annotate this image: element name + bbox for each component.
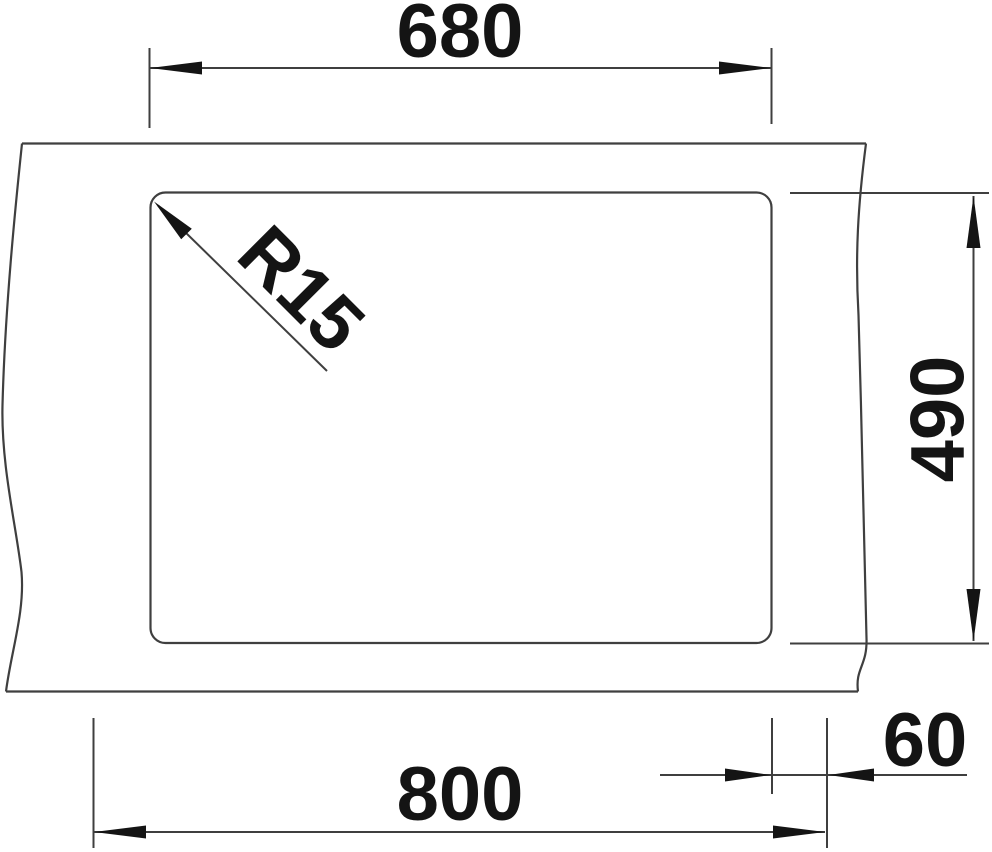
arrowhead-right (719, 62, 771, 75)
arrowhead-bottom (967, 589, 981, 641)
arrowhead-right (773, 826, 825, 839)
arrowhead-left (725, 769, 771, 782)
arrowhead-left (94, 826, 146, 839)
dimension-overall-width: 800 (94, 718, 826, 848)
overall-width-label: 800 (397, 752, 524, 837)
dimension-bowl-width: 680 (150, 0, 772, 128)
arrowhead-top (967, 196, 981, 248)
corner-radius-callout: R15 (154, 202, 380, 372)
bowl-depth-label: 490 (896, 356, 981, 483)
bowl-width-label: 680 (397, 0, 524, 74)
dimension-edge-offset: 60 (660, 698, 967, 848)
break-line-left (2, 144, 22, 692)
countertop-outline (2, 144, 866, 692)
edge-offset-label: 60 (883, 698, 968, 783)
leader-arrowhead (154, 202, 192, 240)
break-line-right (857, 144, 867, 692)
sink-dimension-drawing: 680 490 800 60 R15 (0, 0, 992, 852)
arrowhead-right (829, 769, 875, 782)
dimension-bowl-depth: 490 (790, 193, 989, 644)
technical-drawing-canvas: 680 490 800 60 R15 (0, 0, 992, 852)
corner-radius-label: R15 (222, 210, 381, 369)
arrowhead-left (150, 62, 202, 75)
